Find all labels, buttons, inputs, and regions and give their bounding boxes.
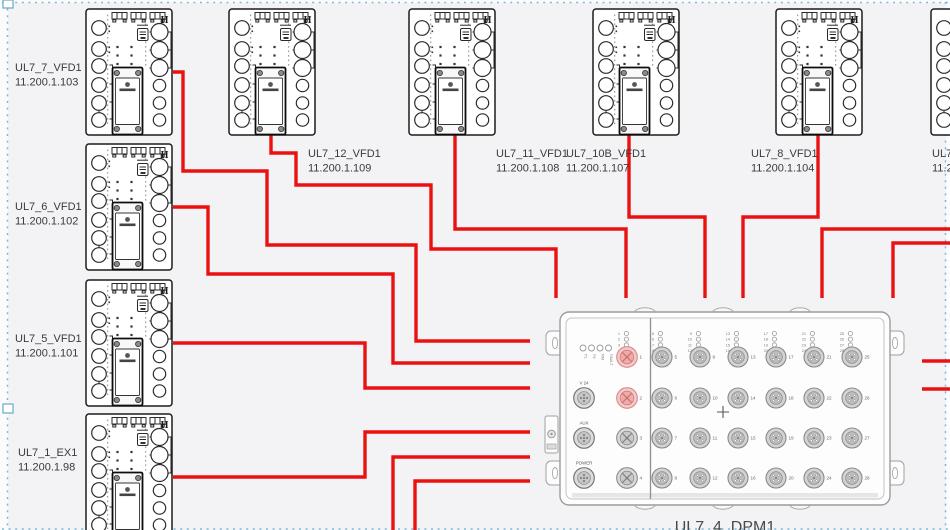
port-led bbox=[696, 331, 700, 335]
dpm-port bbox=[617, 347, 638, 368]
dpm-port bbox=[766, 388, 786, 408]
port-led bbox=[624, 337, 628, 341]
port-number: 16 bbox=[751, 476, 757, 481]
status-led-label: P2 bbox=[592, 354, 596, 359]
vfd-device-UL7_12_VFD1[interactable]: H bbox=[229, 9, 315, 135]
port-led-number: 11 bbox=[688, 343, 692, 347]
port-led bbox=[772, 331, 776, 335]
dpm-port bbox=[728, 388, 748, 408]
latch-screw-center bbox=[550, 433, 552, 435]
vfd-device-UL7_11_VFD1[interactable]: H bbox=[409, 9, 495, 135]
port-number: 6 bbox=[675, 396, 678, 401]
ear-slot bbox=[892, 338, 897, 349]
dpm-port bbox=[842, 347, 862, 367]
port-led-number: 21 bbox=[802, 332, 806, 336]
port-led-number: 3 bbox=[618, 343, 620, 347]
dpm-port bbox=[690, 468, 710, 488]
device-name: UL7_7_VFD1 bbox=[15, 62, 82, 74]
vfd-device-UL7_1_EX1[interactable]: H bbox=[86, 414, 172, 530]
port-number: 23 bbox=[827, 436, 833, 441]
port-number: 26 bbox=[865, 396, 871, 401]
port-led bbox=[772, 337, 776, 341]
device-ip: 11.200.1.101 bbox=[15, 348, 78, 360]
dpm-port bbox=[728, 468, 748, 488]
port-number: 13 bbox=[751, 355, 757, 360]
port-number: 21 bbox=[827, 355, 833, 360]
port-number: 18 bbox=[789, 396, 795, 401]
din-rail-marker: H bbox=[484, 15, 492, 26]
port-led bbox=[848, 343, 852, 347]
din-rail-marker: H bbox=[161, 15, 169, 26]
port-led-number: 26 bbox=[840, 338, 844, 342]
port-number: 22 bbox=[827, 396, 833, 401]
vfd-drawing bbox=[86, 9, 172, 135]
status-led bbox=[606, 345, 612, 351]
vfd-device-UL7_5_VFD1[interactable]: H bbox=[86, 280, 172, 406]
port-led-number: 18 bbox=[764, 338, 768, 342]
port-led-number: 5 bbox=[652, 332, 654, 336]
bottom-strip bbox=[572, 493, 878, 498]
device-ip: 11.200.1.103 bbox=[15, 77, 78, 89]
latch-foot bbox=[547, 444, 556, 449]
dpm-port bbox=[842, 388, 862, 408]
port-number: 3 bbox=[640, 436, 643, 441]
port-number: 28 bbox=[865, 476, 871, 481]
port-led-number: 19 bbox=[764, 343, 768, 347]
port-number: 24 bbox=[827, 476, 833, 481]
port-led bbox=[772, 343, 776, 347]
port-led bbox=[734, 331, 738, 335]
status-led bbox=[589, 345, 595, 351]
device-ip: 11.2 bbox=[932, 163, 950, 175]
power-port-label: AUX bbox=[579, 421, 588, 426]
port-number: 8 bbox=[675, 476, 678, 481]
dpm-port bbox=[766, 468, 786, 488]
device-ip: 11.200.1.108 bbox=[496, 163, 559, 175]
ear-slot bbox=[892, 468, 897, 479]
dpm-device-UL7_4_DPM1[interactable]: P1P2RMFAULT12341234V 24AUXPOWER567856789… bbox=[545, 308, 904, 509]
port-led-number: 22 bbox=[802, 338, 806, 342]
din-rail-marker: H bbox=[851, 15, 859, 26]
vfd-device-UL7_10B_VFD1[interactable]: H bbox=[593, 9, 679, 135]
dpm-port bbox=[804, 388, 824, 408]
dpm-port bbox=[804, 347, 824, 367]
vfd-drawing bbox=[86, 280, 172, 406]
dpm-port bbox=[617, 428, 638, 449]
diagram-canvas[interactable]: HHHHHHHHH P1P2RMFAULT12341234V 24AUXPOWE… bbox=[0, 0, 950, 530]
dpm-port bbox=[728, 428, 748, 448]
vfd-drawing bbox=[86, 414, 172, 530]
dpm-port bbox=[574, 428, 595, 449]
status-led-label: FAULT bbox=[609, 354, 613, 366]
port-led bbox=[848, 331, 852, 335]
dpm-port bbox=[617, 468, 638, 489]
dpm-device-name: UL7_4_DPM1 bbox=[675, 519, 776, 530]
dpm-port bbox=[652, 468, 672, 488]
vfd-device-UL7_[interactable]: H bbox=[931, 9, 950, 135]
port-led bbox=[658, 343, 662, 347]
din-rail-marker: H bbox=[304, 15, 312, 26]
status-led-label: P1 bbox=[584, 354, 588, 359]
vfd-drawing bbox=[931, 9, 950, 135]
port-number: 20 bbox=[789, 476, 795, 481]
device-ip: 11.200.1.104 bbox=[751, 163, 814, 175]
port-led-number: 17 bbox=[764, 332, 768, 336]
port-led-number: 2 bbox=[618, 338, 620, 342]
power-port-label: V 24 bbox=[579, 381, 589, 386]
dpm-port bbox=[652, 428, 672, 448]
status-led-label: RM bbox=[601, 354, 605, 360]
device-ip: 11.200.1.109 bbox=[308, 163, 371, 175]
device-name: UL7_ bbox=[932, 148, 950, 160]
device-name: UL7_10B_VFD1 bbox=[566, 148, 646, 160]
device-name: UL7_11_VFD1 bbox=[496, 148, 568, 160]
port-led-number: 27 bbox=[840, 343, 844, 347]
dpm-port bbox=[766, 347, 786, 367]
device-name: UL7_5_VFD1 bbox=[15, 333, 82, 345]
vfd-device-UL7_6_VFD1[interactable]: H bbox=[86, 144, 172, 270]
port-number: 11 bbox=[713, 436, 718, 441]
status-led bbox=[597, 345, 603, 351]
power-port-label: POWER bbox=[576, 461, 593, 466]
port-number: 15 bbox=[751, 436, 757, 441]
din-rail-marker: H bbox=[161, 150, 169, 161]
port-number: 2 bbox=[640, 396, 643, 401]
port-led-number: 25 bbox=[840, 332, 844, 336]
port-number: 12 bbox=[713, 476, 719, 481]
vfd-device-UL7_7_VFD1[interactable]: H bbox=[86, 9, 172, 135]
device-ip: 11.200.1.102 bbox=[15, 216, 78, 228]
port-led-number: 13 bbox=[726, 332, 730, 336]
ear-slot bbox=[552, 468, 557, 479]
vfd-drawing bbox=[776, 9, 862, 135]
port-led bbox=[658, 331, 662, 335]
dpm-port bbox=[842, 428, 862, 448]
port-number: 9 bbox=[713, 355, 716, 360]
device-name: UL7_6_VFD1 bbox=[15, 201, 82, 213]
port-led bbox=[696, 337, 700, 341]
din-rail-marker: H bbox=[161, 420, 169, 431]
vfd-drawing bbox=[229, 9, 315, 135]
port-led-number: 9 bbox=[690, 332, 692, 336]
device-ip: 11.200.1.107 bbox=[566, 163, 629, 175]
port-led-number: 10 bbox=[688, 338, 692, 342]
vfd-device-UL7_8_VFD1[interactable]: H bbox=[776, 9, 862, 135]
port-number: 25 bbox=[865, 355, 871, 360]
port-number: 7 bbox=[675, 436, 678, 441]
port-led bbox=[810, 331, 814, 335]
din-rail-marker: H bbox=[668, 15, 676, 26]
device-name: UL7_12_VFD1 bbox=[308, 148, 381, 160]
port-led bbox=[658, 337, 662, 341]
dpm-port bbox=[804, 468, 824, 488]
port-number: 27 bbox=[865, 436, 871, 441]
dpm-port bbox=[652, 347, 672, 367]
dpm-port bbox=[690, 388, 710, 408]
device-name: UL7_8_VFD1 bbox=[751, 148, 818, 160]
dpm-port bbox=[804, 428, 824, 448]
port-led bbox=[848, 337, 852, 341]
port-number: 17 bbox=[789, 355, 795, 360]
port-led-number: 23 bbox=[802, 343, 806, 347]
din-rail-marker: H bbox=[161, 286, 169, 297]
vfd-drawing bbox=[86, 144, 172, 270]
selection-handle[interactable] bbox=[3, 0, 13, 8]
port-led bbox=[696, 343, 700, 347]
port-number: 1 bbox=[640, 355, 643, 360]
port-led-number: 7 bbox=[652, 343, 654, 347]
status-led bbox=[580, 345, 586, 351]
port-number: 5 bbox=[675, 355, 678, 360]
port-number: 14 bbox=[751, 396, 757, 401]
device-name: UL7_1_EX1 bbox=[18, 447, 77, 459]
port-led bbox=[734, 343, 738, 347]
dpm-port bbox=[766, 428, 786, 448]
dpm-port bbox=[842, 468, 862, 488]
port-led-number: 15 bbox=[726, 343, 730, 347]
dpm-port bbox=[690, 428, 710, 448]
dpm-port bbox=[574, 468, 595, 489]
port-led-number: 14 bbox=[726, 338, 730, 342]
port-led-number: 1 bbox=[618, 332, 620, 336]
port-led bbox=[734, 337, 738, 341]
port-number: 19 bbox=[789, 436, 795, 441]
port-led bbox=[624, 331, 628, 335]
port-number: 10 bbox=[713, 396, 719, 401]
port-led bbox=[810, 343, 814, 347]
port-led-number: 6 bbox=[652, 338, 654, 342]
dpm-port bbox=[690, 347, 710, 367]
selection-handle[interactable] bbox=[3, 404, 13, 413]
dpm-port bbox=[652, 388, 672, 408]
dpm-port bbox=[617, 388, 638, 409]
ear-slot bbox=[552, 338, 557, 349]
dpm-port bbox=[574, 388, 595, 409]
vfd-drawing bbox=[593, 9, 679, 135]
dpm-port bbox=[728, 347, 748, 367]
port-led bbox=[810, 337, 814, 341]
vfd-drawing bbox=[409, 9, 495, 135]
port-number: 4 bbox=[640, 476, 643, 481]
device-ip: 11.200.1.98 bbox=[18, 462, 75, 474]
